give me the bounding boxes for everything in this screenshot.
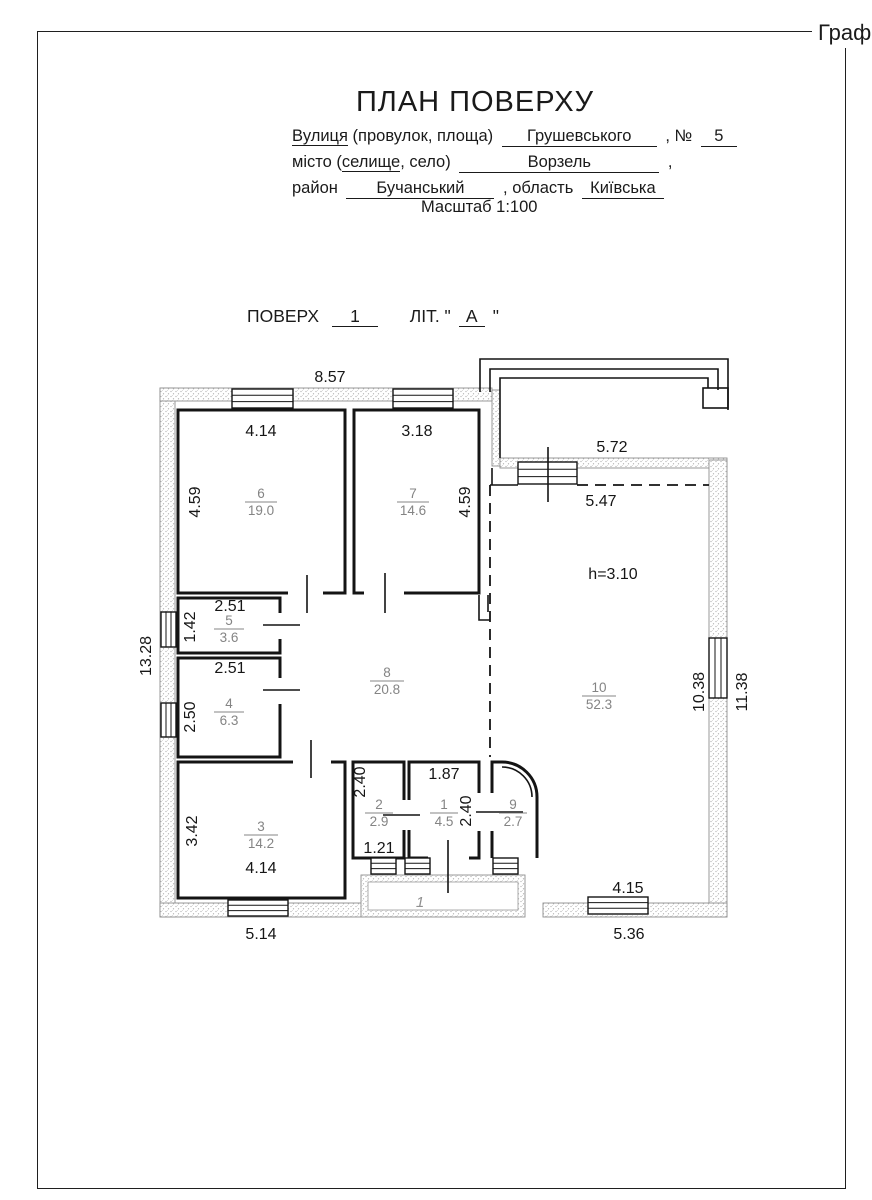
room-number: 10: [591, 680, 606, 695]
room-area: 2.9: [370, 814, 389, 829]
window: [709, 638, 727, 698]
floor-plan-drawing: 8.57 4.14 3.18 4.59 4.59 5.72 5.47 h=3.1…: [0, 0, 872, 1200]
room-label-2: 22.9: [365, 797, 393, 829]
dim-room7-width: 3.18: [401, 423, 432, 440]
room-label-5: 53.6: [214, 613, 244, 645]
entrance-porch: [361, 875, 525, 917]
dim-room3-width: 4.14: [245, 860, 276, 877]
dim-outer-bottom-left: 5.14: [245, 926, 276, 943]
dim-room10-bottom: 4.15: [612, 880, 643, 897]
room-number: 9: [509, 797, 517, 812]
room-area: 3.6: [220, 630, 239, 645]
window: [393, 389, 453, 408]
room-number: 3: [257, 819, 265, 834]
room-label-10: 1052.3: [582, 680, 616, 712]
dim-room9-height: 2.40: [458, 795, 475, 826]
dim-room6-width: 4.14: [245, 423, 276, 440]
room-labels: 619.0 714.6 53.6 46.3 820.8 314.2 22.9 1…: [214, 486, 616, 911]
room-number: 2: [375, 797, 383, 812]
window: [161, 703, 176, 737]
room-area: 2.7: [504, 814, 523, 829]
dim-room2-width: 1.21: [363, 840, 394, 857]
dim-room10-top: 5.47: [585, 493, 616, 510]
room-number: 7: [409, 486, 417, 501]
room-label-4: 46.3: [214, 696, 244, 728]
room-area: 20.8: [374, 682, 400, 697]
room-number: 6: [257, 486, 265, 501]
room-number: 5: [225, 613, 233, 628]
dim-terrace-width: 5.72: [596, 439, 627, 456]
room-label-7: 714.6: [397, 486, 429, 518]
dim-outer-top: 8.57: [314, 369, 345, 386]
dim-room3-height: 3.42: [184, 815, 201, 846]
room-area: 14.2: [248, 836, 274, 851]
room-label-6: 619.0: [245, 486, 277, 518]
window: [588, 897, 648, 914]
room-area: 52.3: [586, 697, 612, 712]
room-number: 4: [225, 696, 233, 711]
room-label-1: 14.5: [430, 797, 458, 829]
dim-room4-width: 2.51: [214, 660, 245, 677]
dim-room6-height: 4.59: [187, 486, 204, 517]
dim-outer-left: 13.28: [138, 636, 155, 676]
dim-outer-bottom-right: 5.36: [613, 926, 644, 943]
dim-room1-width: 1.87: [428, 766, 459, 783]
window: [405, 858, 430, 874]
room-label-9: 92.7: [499, 797, 527, 829]
room-number: 1: [440, 797, 448, 812]
room-area: 19.0: [248, 503, 274, 518]
window: [232, 389, 293, 408]
room-area: 6.3: [220, 713, 239, 728]
room-area: 14.6: [400, 503, 426, 518]
dim-room2-height: 2.40: [352, 766, 369, 797]
dim-room5-height: 1.42: [182, 611, 199, 642]
dim-right-inner: 10.38: [691, 672, 708, 712]
dim-room7-height: 4.59: [457, 486, 474, 517]
window: [228, 900, 288, 916]
dim-room4-height: 2.50: [182, 701, 199, 732]
ceiling-height-label: h=3.10: [588, 566, 637, 583]
corner-note: Граф:: [812, 20, 872, 48]
porch-number: 1: [416, 894, 424, 911]
room-area: 4.5: [435, 814, 454, 829]
room10-boundary: [490, 485, 709, 757]
room-label-3: 314.2: [244, 819, 278, 851]
window: [161, 612, 176, 647]
room-label-8: 820.8: [370, 665, 404, 697]
document-page: Граф: ПЛАН ПОВЕРХУ Вулиця (провулок, пло…: [0, 0, 872, 1200]
window: [493, 858, 518, 874]
window: [371, 858, 396, 874]
dim-outer-right: 11.38: [734, 672, 751, 711]
room-number: 8: [383, 665, 391, 680]
